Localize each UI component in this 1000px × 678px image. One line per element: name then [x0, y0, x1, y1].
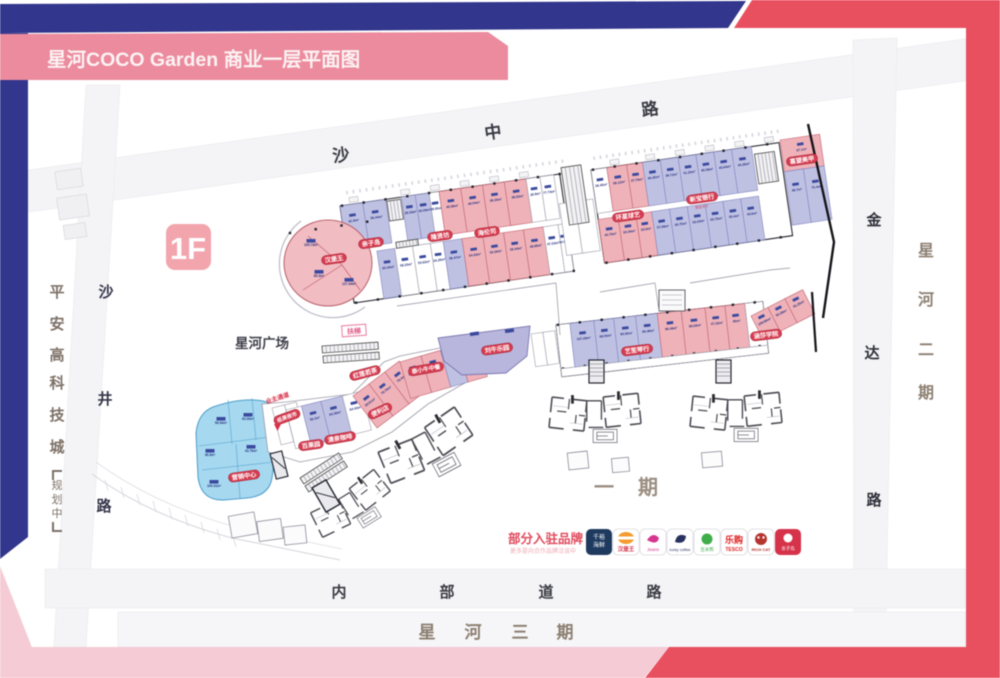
svg-text:乐购: 乐购: [725, 534, 743, 545]
svg-text:吉米熊: 吉米熊: [700, 546, 714, 553]
svg-text:中: 中: [52, 507, 63, 520]
svg-text:RICH CAT: RICH CAT: [752, 547, 771, 552]
svg-text:星河广场: 星河广场: [235, 335, 289, 351]
svg-text:期: 期: [638, 476, 658, 499]
svg-text:平: 平: [49, 284, 64, 301]
svg-text:高: 高: [49, 346, 64, 364]
svg-text:lucky coffee: lucky coffee: [669, 547, 691, 552]
svg-text:路: 路: [96, 497, 112, 515]
svg-text:内: 内: [331, 583, 346, 601]
svg-text:路: 路: [866, 491, 882, 509]
svg-text:85.3m²: 85.3m²: [314, 274, 325, 278]
svg-text:城: 城: [49, 438, 64, 456]
svg-text:56.94m²: 56.94m²: [215, 421, 228, 425]
svg-text:部分入驻品牌: 部分入驻品牌: [508, 531, 584, 546]
svg-text:科: 科: [49, 374, 64, 392]
svg-text:星: 星: [419, 623, 436, 642]
svg-text:千裕: 千裕: [593, 533, 605, 541]
svg-text:1F: 1F: [170, 231, 206, 266]
svg-text:道: 道: [538, 583, 553, 601]
svg-text:划: 划: [52, 493, 63, 506]
svg-text:星: 星: [918, 242, 934, 260]
svg-text:沙: 沙: [331, 145, 350, 166]
svg-text:安: 安: [49, 315, 64, 333]
svg-text:一: 一: [594, 477, 614, 499]
svg-text:36.9m²: 36.9m²: [205, 453, 216, 457]
svg-text:河: 河: [465, 623, 482, 642]
svg-text:汉堡王: 汉堡王: [618, 545, 635, 553]
svg-text:达: 达: [864, 344, 879, 362]
svg-text:期: 期: [918, 383, 934, 402]
svg-text:亲子岛: 亲子岛: [781, 545, 795, 552]
svg-text:河: 河: [918, 290, 934, 309]
svg-text:100.41m²: 100.41m²: [207, 484, 222, 488]
svg-text:127.44m²: 127.44m²: [342, 282, 357, 286]
svg-text:沙: 沙: [98, 284, 113, 301]
svg-text:金: 金: [865, 211, 882, 229]
svg-text:93.09m²: 93.09m²: [242, 417, 255, 421]
svg-text:更多是向合作品牌洽谈中: 更多是向合作品牌洽谈中: [510, 547, 576, 555]
svg-text:中: 中: [483, 121, 503, 143]
svg-text:路: 路: [646, 583, 662, 601]
svg-text:二: 二: [918, 342, 934, 359]
svg-text:规: 规: [52, 478, 63, 492]
svg-text:105.73m²: 105.73m²: [304, 243, 319, 247]
svg-text:43.79m²: 43.79m²: [245, 449, 258, 453]
svg-text:期: 期: [557, 623, 574, 642]
svg-text:井: 井: [97, 390, 112, 408]
svg-text:星河COCO Garden 商业一层平面图: 星河COCO Garden 商业一层平面图: [47, 48, 360, 71]
svg-text:Jeans: Jeans: [647, 547, 660, 552]
svg-text:TESCO: TESCO: [725, 547, 742, 553]
svg-text:三: 三: [512, 623, 529, 642]
svg-text:技: 技: [49, 406, 65, 424]
svg-text:海鲜: 海鲜: [593, 541, 605, 549]
svg-text:部: 部: [439, 583, 454, 601]
